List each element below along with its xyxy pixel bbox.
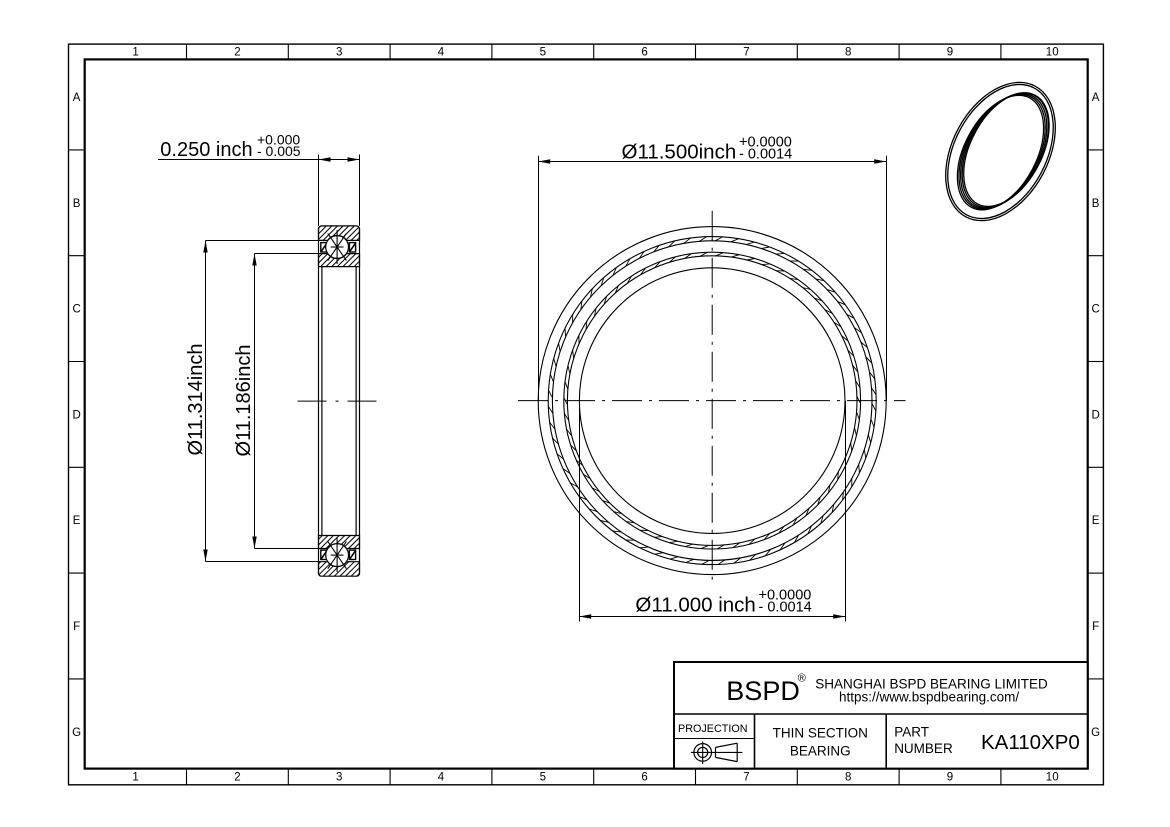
svg-text:5: 5 xyxy=(540,46,546,58)
svg-text:E: E xyxy=(73,515,81,527)
svg-text:F: F xyxy=(73,621,80,633)
svg-text:- 0.0014: - 0.0014 xyxy=(739,146,792,162)
svg-text:NUMBER: NUMBER xyxy=(894,741,953,756)
svg-text:10: 10 xyxy=(1046,46,1059,58)
svg-text:Ø11.000 inch: Ø11.000 inch xyxy=(635,594,755,617)
svg-text:9: 9 xyxy=(947,772,953,784)
svg-text:Ø11.314inch: Ø11.314inch xyxy=(185,344,207,456)
svg-text:BEARING: BEARING xyxy=(790,743,851,758)
svg-text:0.250 inch: 0.250 inch xyxy=(160,139,252,161)
svg-text:PROJECTION: PROJECTION xyxy=(678,723,748,735)
svg-text:THIN SECTION: THIN SECTION xyxy=(773,726,868,741)
svg-text:1: 1 xyxy=(132,46,138,58)
svg-text:KA110XP0: KA110XP0 xyxy=(981,731,1080,754)
svg-text:8: 8 xyxy=(845,46,851,58)
svg-text:B: B xyxy=(1092,198,1100,210)
svg-text:BSPD: BSPD xyxy=(726,676,800,706)
svg-text:A: A xyxy=(1092,92,1100,104)
svg-text:F: F xyxy=(1092,621,1099,633)
svg-text:10: 10 xyxy=(1046,772,1059,784)
svg-text:Ø11.186inch: Ø11.186inch xyxy=(233,345,255,457)
svg-text:PART: PART xyxy=(894,724,929,739)
svg-text:7: 7 xyxy=(743,772,749,784)
svg-text:4: 4 xyxy=(438,772,445,784)
svg-text:- 0.005: - 0.005 xyxy=(257,143,301,159)
svg-text:C: C xyxy=(72,304,80,316)
svg-text:D: D xyxy=(1091,409,1099,421)
svg-text:6: 6 xyxy=(641,772,647,784)
svg-text:8: 8 xyxy=(845,772,851,784)
svg-text:1: 1 xyxy=(132,772,138,784)
svg-text:- 0.0014: - 0.0014 xyxy=(759,600,812,616)
svg-text:5: 5 xyxy=(540,772,546,784)
svg-text:D: D xyxy=(72,409,80,421)
svg-text:®: ® xyxy=(798,673,806,685)
svg-text:G: G xyxy=(72,727,81,739)
svg-text:9: 9 xyxy=(947,46,953,58)
svg-text:3: 3 xyxy=(336,46,342,58)
svg-text:3: 3 xyxy=(336,772,342,784)
svg-text:https://www.bspdbearing.com/: https://www.bspdbearing.com/ xyxy=(839,690,1019,705)
svg-text:C: C xyxy=(1091,304,1099,316)
svg-text:6: 6 xyxy=(641,46,647,58)
svg-text:2: 2 xyxy=(234,772,240,784)
svg-text:2: 2 xyxy=(234,46,240,58)
svg-text:E: E xyxy=(1092,515,1100,527)
svg-text:Ø11.500inch: Ø11.500inch xyxy=(622,140,737,163)
svg-text:7: 7 xyxy=(743,46,749,58)
svg-text:4: 4 xyxy=(438,46,445,58)
svg-text:G: G xyxy=(1091,727,1100,739)
svg-text:B: B xyxy=(73,198,81,210)
svg-text:A: A xyxy=(73,92,81,104)
